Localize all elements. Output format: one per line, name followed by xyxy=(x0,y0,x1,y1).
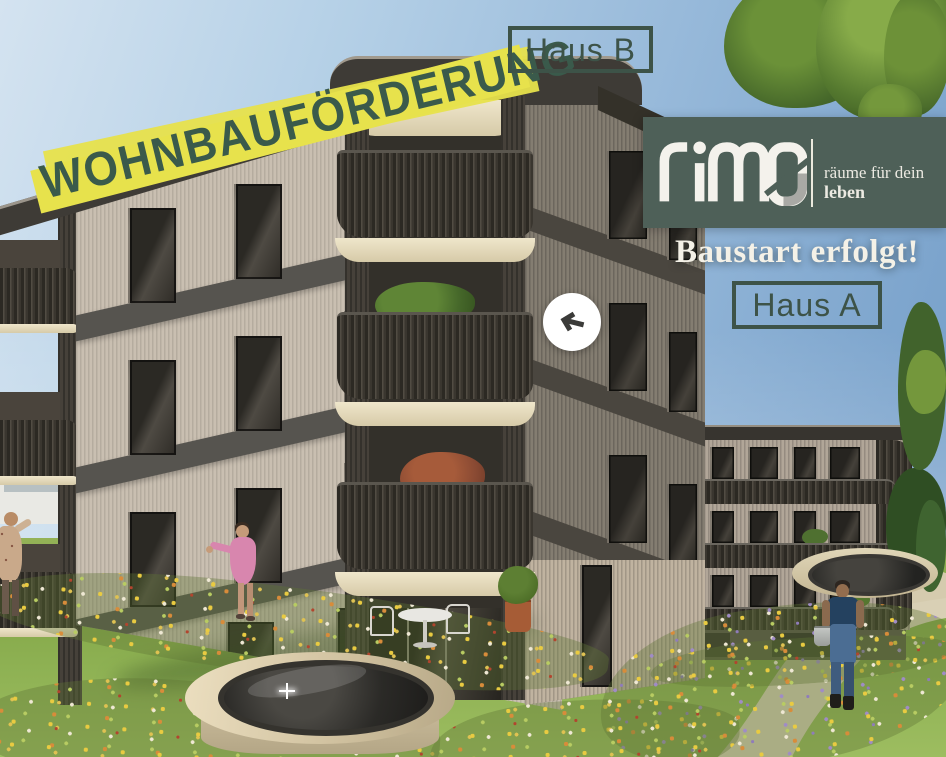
rimo-logo xyxy=(657,135,807,206)
tower-balcony-slab xyxy=(335,402,535,426)
person-leg xyxy=(831,662,841,696)
arrow-button[interactable] xyxy=(543,293,601,351)
person-leg xyxy=(844,662,854,698)
person-shirt xyxy=(827,597,859,627)
marketing-visual: WOHNBAUFÖRDERUNG Haus B räume für dein l… xyxy=(0,0,946,757)
person-arm xyxy=(822,600,830,628)
left-balcony-rail xyxy=(0,420,78,478)
haus-a-label-text: Haus A xyxy=(752,289,861,321)
logo-card: räume für dein leben xyxy=(643,117,946,228)
logo-letter-i-dot xyxy=(693,141,706,154)
left-balcony-slab xyxy=(0,476,78,485)
left-balcony-slab xyxy=(0,324,78,333)
window xyxy=(607,303,647,391)
haus-a-window xyxy=(710,511,734,543)
arrow-left-icon xyxy=(554,304,590,340)
person-dress xyxy=(230,537,256,585)
logo-letter-r xyxy=(664,147,687,201)
tagline-line1: räume für dein xyxy=(824,163,924,182)
person-shoe xyxy=(246,616,255,621)
haus-a-window xyxy=(748,511,778,543)
haus-a-window xyxy=(710,575,734,607)
person-hand xyxy=(206,546,213,553)
window xyxy=(607,455,647,543)
person-head xyxy=(4,512,18,526)
tower-balcony-rail xyxy=(337,482,533,569)
cta-text: Baustart erfolgt! xyxy=(648,234,946,271)
person-boot xyxy=(830,694,841,708)
terrace-chair xyxy=(370,606,394,636)
person-leg xyxy=(247,583,253,617)
logo-divider xyxy=(811,139,813,207)
tower-balcony-slab xyxy=(335,238,535,262)
logo-letter-m xyxy=(713,147,764,201)
logo-tagline: räume für dein leben xyxy=(824,163,924,203)
bucket xyxy=(814,626,831,646)
haus-b-label[interactable]: Haus B xyxy=(508,26,653,73)
window xyxy=(234,336,282,431)
haus-a-window xyxy=(710,447,734,479)
window xyxy=(607,151,647,239)
haus-a-window xyxy=(748,447,778,479)
window xyxy=(128,208,176,303)
window xyxy=(667,484,697,564)
person-overalls xyxy=(830,624,856,664)
person-at-left-edge xyxy=(0,512,30,620)
person-arm xyxy=(856,600,864,628)
dome-sparkle xyxy=(286,683,288,699)
haus-b-label-text: Haus B xyxy=(525,34,636,66)
tower-balcony-rail xyxy=(337,150,533,237)
person-body xyxy=(0,526,22,582)
person-leg xyxy=(238,583,244,615)
skylight-dome-large xyxy=(185,638,455,757)
person-boot xyxy=(843,696,854,710)
terrace-chair xyxy=(446,604,470,634)
haus-a-label[interactable]: Haus A xyxy=(732,281,882,329)
haus-a-window xyxy=(792,447,816,479)
person-leg xyxy=(12,580,19,616)
haus-a-window xyxy=(828,447,860,479)
tower-balcony-rail xyxy=(337,312,533,399)
person-shoe xyxy=(236,614,245,619)
person-leg xyxy=(2,580,9,614)
gardener-with-bucket xyxy=(818,580,870,720)
person-head xyxy=(836,584,849,598)
window xyxy=(234,184,282,279)
left-balcony-rail xyxy=(0,268,78,326)
window xyxy=(667,332,697,412)
tagline-line2: leben xyxy=(824,182,924,203)
haus-a-window xyxy=(828,511,860,543)
woman-in-pink-dress xyxy=(222,522,266,622)
haus-a-window xyxy=(748,575,778,607)
window xyxy=(128,360,176,455)
